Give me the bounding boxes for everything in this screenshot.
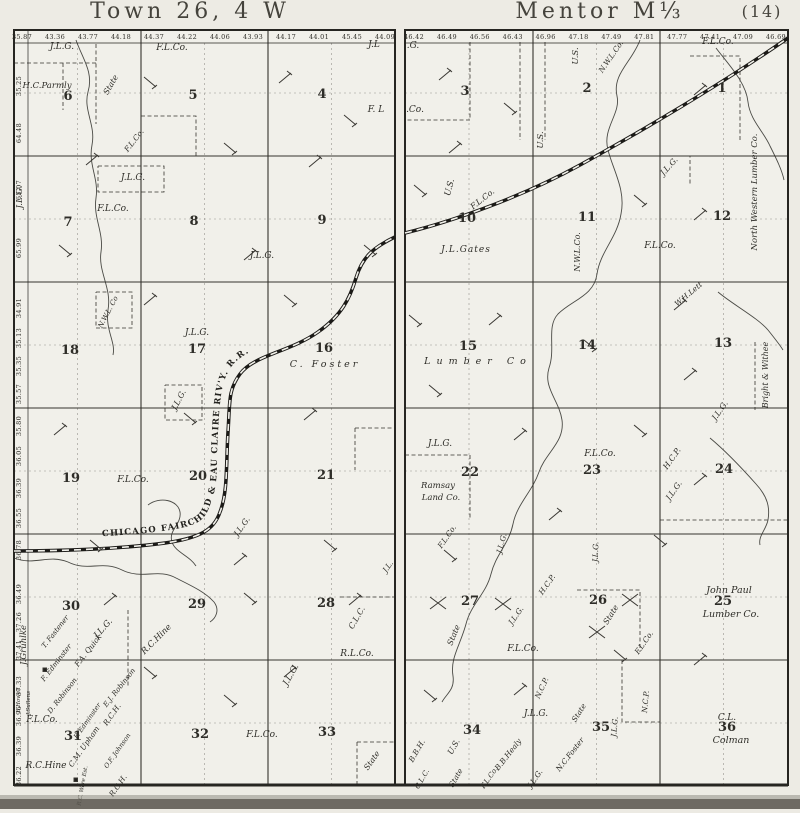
left-map-title: Town 26, 4 W [90,0,290,24]
acreage-number: 35.80 [15,416,23,436]
owner-label: J.L.G. [119,173,145,183]
section-number: 26 [589,593,607,608]
acreage-number: 46.69 [766,33,786,41]
section-number: 12 [713,209,731,224]
acreage-number: 34.91 [15,298,23,318]
acreage-number: 36.05 [15,446,23,466]
section-number: 21 [317,468,335,483]
acreage-number: 35.35 [15,356,23,376]
owner-label: U.S. [536,131,546,148]
owner-label: F.L.Co. [701,37,734,47]
owner-label: Ramsay [420,481,455,491]
section-number: 2 [582,81,591,96]
acreage-number: 47.09 [733,33,753,41]
owner-label: F.L.Co. [116,475,149,485]
owner-label: C.L. [718,713,736,723]
right-map-title: Mentor M⅓ [515,0,684,24]
owner-label: J.L.G. [522,709,548,719]
section-number: 34 [463,723,481,738]
acreage-number: 46.56 [470,33,490,41]
section-number: 27 [461,594,479,609]
section-number: 1 [717,81,726,96]
owner-label: F.L.Co. [96,204,129,214]
acreage-number: 35.57 [15,384,23,404]
owner-label: U.S. [571,47,581,64]
acreage-number: 36.55 [15,508,23,528]
owner-label: Colman [713,735,750,746]
owner-label: J.L.G. [48,42,74,52]
acreage-number: 43.93 [243,33,263,41]
acreage-number: 36.39 [15,736,23,756]
plat-map: Town 26, 4 W Mentor M⅓ (14) [0,0,800,809]
owner-label: N.W.L.Co. [573,232,582,273]
section-number: 35 [592,720,610,735]
section-number: 6 [63,89,72,104]
page-number: (14) [742,2,783,21]
section-number: 29 [188,597,206,612]
section-number: 17 [188,342,206,357]
acreage-number: 45.45 [342,33,362,41]
acreage-number: 47.18 [568,33,588,41]
acreage-number: 65.99 [15,238,23,258]
acreage-number: 47.77 [667,33,687,41]
section-number: 24 [715,462,733,477]
scan-edge-shadow [0,799,800,809]
acreage-number: 44.37 [144,33,164,41]
owner-label: Lumber Co. [702,609,760,620]
owner-label: J.L.Gates [439,245,491,255]
owner-label: J.L.G. [248,251,274,261]
acreage-number: 46.49 [437,33,457,41]
acreage-number: 44.01 [309,33,329,41]
section-number: 20 [189,469,207,484]
survey-dot [74,778,78,782]
owner-label: John Paul [704,585,752,596]
section-number: 18 [61,343,79,358]
scan-edge-shadow-light [0,795,800,799]
acreage-number: 44.18 [111,33,131,41]
acreage-number: 44.17 [276,33,296,41]
owner-label: F.L.Co. [643,241,676,251]
acreage-number: 36.39 [15,478,23,498]
owner-label: Bright & Withee [761,342,770,410]
owner-label: .Co. [406,105,424,115]
acreage-number: 47.81 [634,33,654,41]
section-number: 9 [317,213,326,228]
section-number: 14 [578,338,596,353]
owner-label: J.L.G. [15,186,25,211]
acreage-number: 43.77 [78,33,98,41]
section-number: 7 [63,215,72,230]
owner-label: H.C.Parmly [21,81,71,91]
owner-label: F.L.Co. [155,43,188,53]
owner-label: .G. [407,41,420,51]
owner-label: J.Gruhlke [19,625,29,667]
acreage-number: 46.43 [503,33,523,41]
section-number: 22 [461,465,479,480]
owner-label: Lumber Co [423,356,532,367]
section-number: 13 [714,336,732,351]
acreage-number: 44.06 [210,33,230,41]
section-number: 16 [315,341,333,356]
owner-label: F.L.Co. [506,644,539,654]
acreage-number: 35.13 [15,328,23,348]
owner-label: J.L.G. [591,542,601,565]
acreage-number: 36.78 [15,540,23,560]
section-number: 15 [459,339,477,354]
owner-label: R.C.Hine [25,761,67,771]
acreage-number: 35.87 [12,33,32,41]
section-number: 33 [318,725,336,740]
section-number: 25 [714,594,732,609]
section-number: 3 [460,84,469,99]
owner-label: F.L.Co. [583,449,616,459]
owner-label: J.Sullens [26,691,32,716]
owner-label: C. Foster [290,359,361,370]
owner-label: North Western Lumber Co. [750,134,760,252]
section-number: 30 [62,599,80,614]
acreage-number: 36.49 [15,584,23,604]
section-number: 4 [317,87,326,102]
section-number: 23 [583,463,601,478]
owner-label: F.L.Co. [25,715,58,725]
owner-label: J.L.G. [183,328,209,338]
section-number: 11 [578,210,596,225]
section-number: 32 [191,727,209,742]
acreage-number: 36.22 [15,766,23,786]
section-number: 19 [62,471,80,486]
owner-label: F. L [367,105,385,115]
owner-label: J.L [366,40,380,50]
section-number: 10 [458,211,476,226]
acreage-number: 43.36 [45,33,65,41]
section-number: 5 [188,88,197,103]
acreage-number: 64.48 [15,123,23,143]
owner-label: E.Howell [16,687,22,714]
acreage-number: 44.22 [177,33,197,41]
owner-label: F.L.Co. [245,730,278,740]
section-number: 28 [317,596,335,611]
owner-label: Land Co. [421,493,461,503]
owner-label: J.L.G. [426,439,452,449]
section-number: 8 [189,214,198,229]
acreage-number: 46.42 [404,33,424,41]
owner-label: R.L.Co. [339,649,374,659]
acreage-number: 46.96 [536,33,556,41]
